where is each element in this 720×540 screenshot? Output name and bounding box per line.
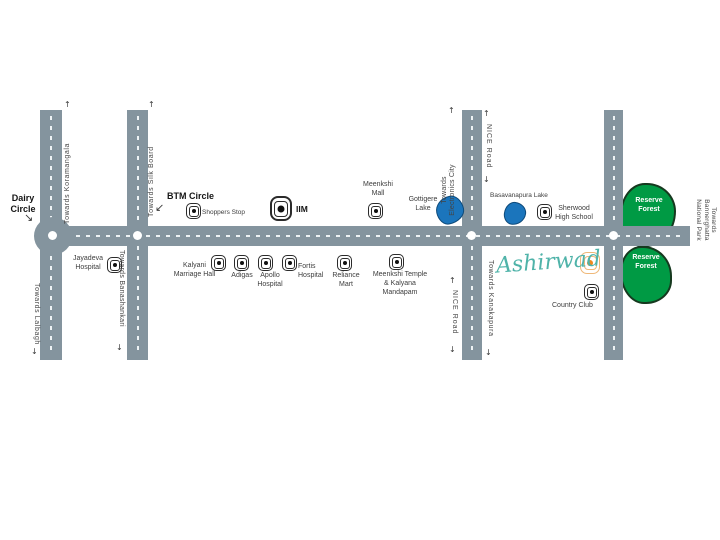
up-arrow-icon: ↑: [483, 110, 490, 118]
country-club-label: Country Club: [552, 302, 593, 311]
road-label-koramangala: Towards Koramangala: [64, 143, 71, 224]
junction-dot-silkboard: [133, 231, 142, 240]
apollo-hospital-icon: [258, 255, 273, 271]
meenkshi-mall-label: Meenkshi Mall: [357, 181, 399, 199]
reserve-forest-lower-label: Reserve Forest: [624, 253, 668, 271]
down-arrow-icon: ↓: [31, 348, 38, 356]
kalyani-marriage-hall-label: Kalyani Marriage Hall: [171, 262, 218, 280]
sherwood-school-icon: [537, 204, 552, 220]
shoppers-stop-icon: [186, 203, 201, 219]
down-arrow-icon: ↓: [483, 176, 490, 184]
reliance-mart-label: Reliance Mart: [327, 272, 365, 290]
road-label-banashankari: Towards Banashankari: [118, 250, 125, 327]
basavanapura-lake-shape: [503, 201, 528, 227]
junction-dot-dairy-circle: [48, 231, 57, 240]
road-label-silk-board: Towards Silk Board: [148, 146, 155, 217]
junction-dot-nice-road: [467, 231, 476, 240]
location-map: ↑ Towards Koramangala ↑ Towards Silk Boa…: [0, 0, 720, 540]
road-label-electronics-city: Towards Electronics City: [441, 160, 457, 220]
country-club-icon: [584, 284, 599, 300]
jayadeva-hospital-label: Jayadeva Hospital: [69, 255, 107, 273]
down-arrow-icon: ↓: [449, 346, 456, 354]
road-main-horizontal: [50, 226, 690, 246]
junction-dot-right: [609, 231, 618, 240]
apollo-hospital-label: Apollo Hospital: [252, 272, 288, 290]
meenkshi-temple-icon: [389, 254, 404, 270]
meenkshi-temple-label: Meenkshi Temple & Kalyana Mandapam: [371, 271, 429, 297]
dairy-circle-label: Dairy Circle: [2, 193, 44, 215]
sherwood-school-label: Sherwood High School: [551, 205, 597, 223]
down-arrow-icon: ↓: [116, 344, 123, 352]
up-arrow-icon: ↑: [148, 101, 155, 109]
btm-circle-label: BTM Circle: [167, 191, 214, 202]
sw-arrow-icon: ↙: [155, 202, 164, 213]
gottigere-lake-label: Gottigere Lake: [404, 196, 442, 214]
road-label-bannerghatta: Towards Bannerghatta National Park: [695, 197, 717, 243]
road-label-lalbagh: Towards Lalbagh: [33, 283, 40, 345]
se-arrow-icon: ↘: [24, 212, 33, 223]
up-arrow-icon: ↑: [448, 107, 455, 115]
reserve-forest-upper-label: Reserve Forest: [626, 196, 672, 214]
road-label-nice-road-lower: NICE Road: [451, 290, 458, 334]
road-label-kanakapura: Towards Kanakapura: [487, 260, 494, 337]
road-label-nice-road-upper: NICE Road: [485, 124, 492, 168]
iim-label: IIM: [296, 204, 308, 214]
shoppers-stop-label: Shoppers Stop: [202, 209, 245, 217]
adigas-icon: [234, 255, 249, 271]
up-arrow-icon: ↑: [64, 101, 71, 109]
down-arrow-icon: ↓: [485, 349, 492, 357]
reliance-mart-icon: [337, 255, 352, 271]
up-arrow-icon: ↑: [449, 277, 456, 285]
iim-icon: [270, 196, 292, 221]
basavanapura-lake-label: Basavanapura Lake: [490, 192, 548, 200]
meenkshi-mall-icon: [368, 203, 383, 219]
fortis-hospital-icon: [282, 255, 297, 271]
